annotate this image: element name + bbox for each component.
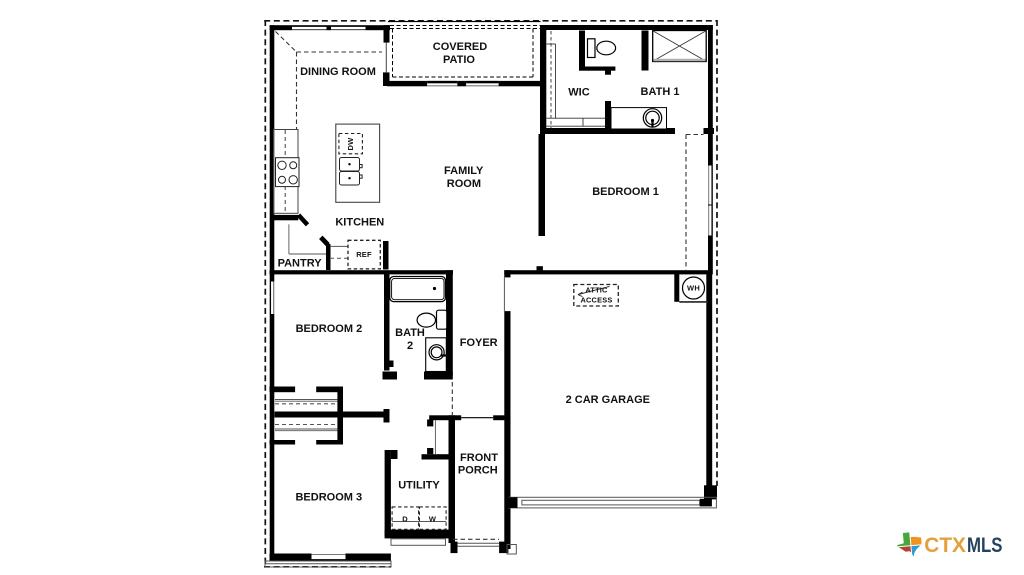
- svg-text:2: 2: [407, 340, 413, 352]
- svg-text:PANTRY: PANTRY: [278, 257, 323, 269]
- svg-text:UTILITY: UTILITY: [398, 479, 440, 491]
- svg-text:PATIO: PATIO: [443, 54, 475, 66]
- svg-text:PORCH: PORCH: [458, 465, 498, 477]
- svg-text:BEDROOM 2: BEDROOM 2: [296, 323, 363, 335]
- svg-text:ATTIC: ATTIC: [585, 286, 608, 295]
- svg-text:CTX: CTX: [924, 533, 966, 557]
- svg-text:ROOM: ROOM: [447, 178, 481, 190]
- svg-text:WIC: WIC: [568, 87, 589, 99]
- svg-text:BEDROOM 1: BEDROOM 1: [592, 186, 659, 198]
- svg-text:BATH: BATH: [395, 327, 425, 339]
- svg-text:BEDROOM 3: BEDROOM 3: [295, 492, 362, 504]
- svg-text:REF: REF: [356, 250, 372, 259]
- svg-text:2 CAR GARAGE: 2 CAR GARAGE: [566, 394, 650, 406]
- svg-text:COVERED: COVERED: [433, 41, 487, 53]
- svg-text:DW: DW: [346, 137, 355, 151]
- svg-text:ACCESS: ACCESS: [580, 295, 612, 304]
- svg-text:KITCHEN: KITCHEN: [335, 216, 384, 228]
- svg-text:D: D: [402, 514, 408, 523]
- svg-text:DINING ROOM: DINING ROOM: [300, 66, 376, 78]
- svg-text:WH: WH: [687, 283, 700, 292]
- svg-text:FRONT: FRONT: [460, 452, 498, 464]
- svg-text:FAMILY: FAMILY: [444, 165, 484, 177]
- svg-text:BATH 1: BATH 1: [641, 86, 680, 98]
- svg-text:FOYER: FOYER: [460, 337, 498, 349]
- svg-text:MLS: MLS: [967, 533, 1003, 557]
- svg-text:W: W: [429, 514, 437, 523]
